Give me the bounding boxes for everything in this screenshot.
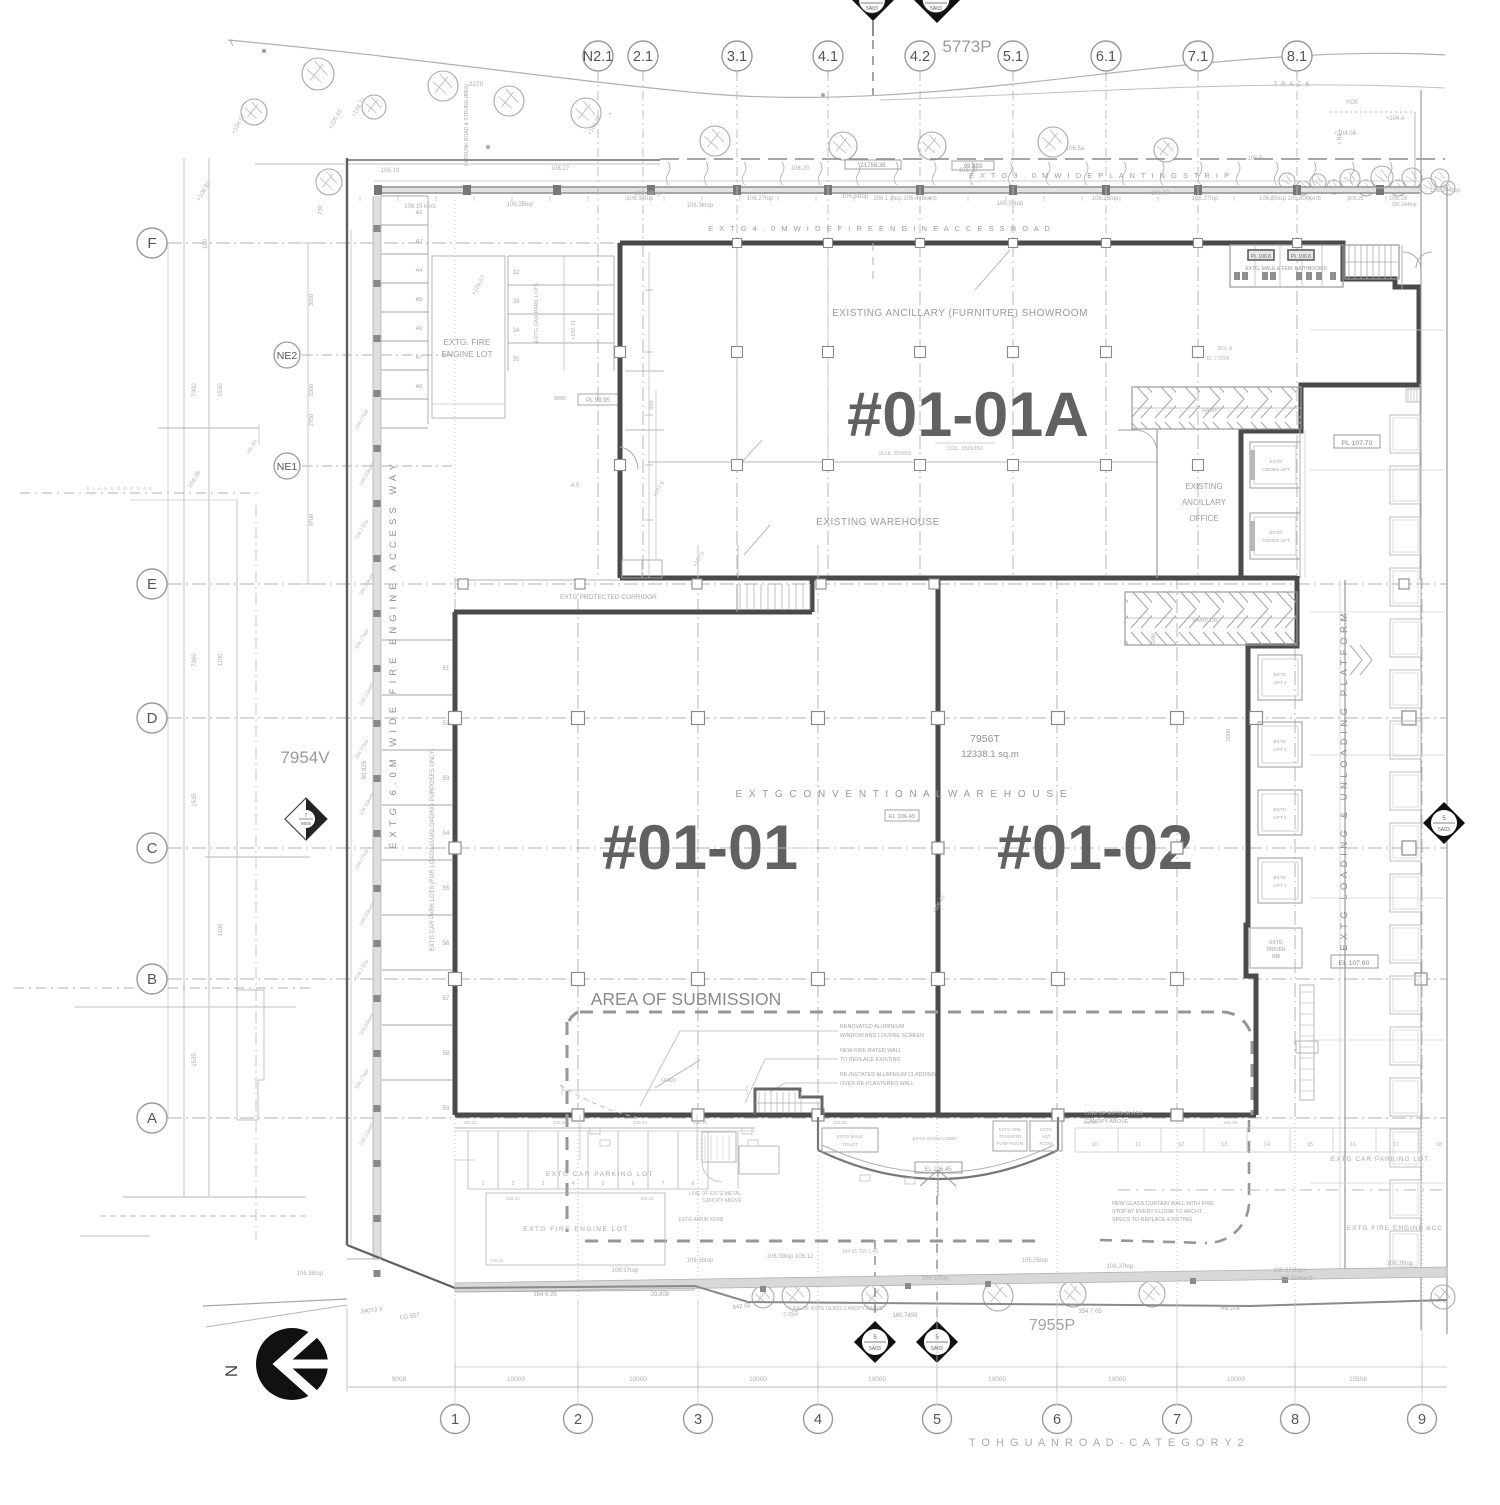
svg-text:LIFT 1: LIFT 1	[1273, 883, 1287, 888]
svg-text:34: 34	[513, 328, 520, 334]
svg-text:EXTG: EXTG	[1274, 739, 1287, 744]
svg-text:5A03: 5A03	[1438, 827, 1450, 833]
svg-text:RAMP DN: RAMP DN	[1192, 618, 1217, 624]
svg-text:EXISTING: EXISTING	[1185, 482, 1222, 491]
svg-text:106.19: 106.19	[381, 168, 400, 174]
svg-text:EXTG: EXTG	[1269, 940, 1283, 946]
svg-text:54: 54	[443, 831, 450, 837]
svg-text:10: 10	[1092, 1142, 1098, 1148]
svg-text:A8: A8	[416, 384, 423, 390]
svg-text:10000: 10000	[1108, 1376, 1126, 1383]
svg-text:EXTG: EXTG	[1274, 875, 1287, 880]
svg-text:A7: A7	[416, 355, 423, 361]
svg-text:2: 2	[574, 1412, 582, 1428]
svg-text:RE-INSTATED ALUMINIUM CLADDING: RE-INSTATED ALUMINIUM CLADDING	[840, 1072, 936, 1078]
svg-text:1500: 1500	[1151, 634, 1157, 646]
svg-text:1535: 1535	[192, 1053, 198, 1067]
svg-text:1100: 1100	[218, 923, 224, 937]
svg-text:GOODS LIFT: GOODS LIFT	[1262, 538, 1290, 543]
svg-text:6: 6	[632, 1181, 635, 1187]
svg-text:E X T G 3 . 0 M W I D E: E X T G 3 . 0 M W I D E P L A N T I N G …	[969, 171, 1231, 180]
svg-text:5A03: 5A03	[866, 6, 878, 12]
svg-text:106.39top 106.12: 106.39top 106.12	[767, 1254, 814, 1260]
svg-text:51: 51	[443, 666, 450, 672]
svg-text:ROL A: ROL A	[1218, 346, 1233, 352]
svg-text:LINE OF EXTG METAL: LINE OF EXTG METAL	[689, 1191, 741, 1197]
svg-text:106.27: 106.27	[551, 166, 570, 172]
svg-text:106.32: 106.32	[463, 1120, 477, 1125]
svg-text:EXTG. FIRE: EXTG. FIRE	[443, 337, 491, 347]
svg-text:7954V: 7954V	[280, 748, 330, 767]
svg-text:A: A	[147, 1110, 157, 1127]
svg-text:5300: 5300	[309, 384, 315, 396]
svg-text:106.77: 106.77	[1151, 191, 1170, 197]
svg-text:A2: A2	[416, 210, 423, 216]
svg-text:5A03: 5A03	[869, 1346, 881, 1352]
svg-text:106.38top: 106.38top	[1387, 1261, 1414, 1267]
svg-text:TRANSFER: TRANSFER	[999, 1134, 1022, 1139]
svg-text:EXTG: EXTG	[1270, 459, 1283, 464]
svg-text:5: 5	[933, 1412, 941, 1428]
svg-text:57: 57	[443, 996, 450, 1002]
svg-text:EXTG: EXTG	[1270, 530, 1283, 535]
svg-text:ANCILLARY: ANCILLARY	[1182, 498, 1227, 507]
svg-text:PL 99.95: PL 99.95	[586, 398, 610, 404]
svg-text:TO REPLACE EXISTING: TO REPLACE EXISTING	[840, 1057, 901, 1063]
svg-text:2.1: 2.1	[633, 49, 653, 65]
svg-text:35: 35	[513, 357, 520, 363]
svg-text:106.30: 106.30	[693, 1120, 707, 1125]
svg-text:4.5: 4.5	[571, 483, 580, 489]
svg-text:106.34top: 106.34top	[842, 194, 869, 200]
svg-text:1535: 1535	[192, 793, 198, 807]
svg-text:106.38top: 106.38top	[687, 1258, 714, 1264]
svg-text:EXTG CAR PARKING LOT: EXTG CAR PARKING LOT	[1331, 1156, 1429, 1163]
svg-text:N: N	[222, 1365, 241, 1377]
svg-text:106.38top: 106.38top	[635, 191, 662, 197]
svg-text:106.31: 106.31	[490, 1258, 504, 1263]
svg-text:AREA OF SUBMISSION: AREA OF SUBMISSION	[591, 989, 782, 1009]
svg-text:A3: A3	[416, 239, 423, 245]
svg-text:+: +	[608, 112, 612, 118]
svg-text:32: 32	[513, 270, 520, 276]
svg-text:106.35top: 106.35top	[507, 202, 534, 208]
svg-text:106.27top: 106.27top	[1192, 196, 1219, 202]
svg-text:7956T: 7956T	[970, 733, 1000, 745]
svg-text:CANOPY ABOVE: CANOPY ABOVE	[702, 1198, 742, 1204]
svg-text:59: 59	[443, 1106, 450, 1112]
svg-text:9008: 9008	[392, 1376, 407, 1383]
svg-text:PL 107.70: PL 107.70	[1342, 440, 1373, 447]
svg-text:DRIVER: DRIVER	[1267, 947, 1286, 953]
svg-text:106.25top 105.806kerb: 106.25top 105.806kerb	[1259, 196, 1321, 202]
svg-text:D: D	[147, 710, 158, 727]
svg-text:T R A C K: T R A C K	[1273, 81, 1310, 88]
svg-text:7955P: 7955P	[1029, 1317, 1075, 1334]
svg-text:EL 7 OSN: EL 7 OSN	[1207, 356, 1230, 362]
svg-text:106.38: 106.38	[1083, 1120, 1097, 1125]
svg-text:EXTG SHOW LOBBY: EXTG SHOW LOBBY	[913, 1136, 958, 1141]
svg-text:354 6.25: 354 6.25	[533, 1292, 557, 1298]
svg-text:8: 8	[692, 1181, 695, 1187]
svg-text:PL 106.8: PL 106.8	[1251, 254, 1271, 260]
svg-text:9506: 9506	[301, 821, 312, 826]
svg-text:LINE OF EXTG GLASS: LINE OF EXTG GLASS	[1085, 1111, 1143, 1117]
svg-text:106.45: 106.45	[1223, 1120, 1237, 1125]
svg-text:EXTG MALE: EXTG MALE	[837, 1134, 863, 1139]
svg-text:14400: 14400	[660, 1078, 675, 1084]
svg-text:7: 7	[1173, 1412, 1181, 1428]
svg-text:OVER RE-PLASTERED WALL: OVER RE-PLASTERED WALL	[840, 1081, 914, 1087]
svg-text:106.5a: 106.5a	[1066, 146, 1085, 152]
svg-text:EXTG FIRE: EXTG FIRE	[999, 1127, 1021, 1132]
svg-text:EXTG 6.0M WIDE FIRE ENGINE ACC: EXTG 6.0M WIDE FIRE ENGINE ACCESS WAY	[388, 459, 399, 849]
svg-text:58: 58	[443, 1051, 450, 1057]
svg-text:8: 8	[1291, 1412, 1299, 1428]
svg-text:16: 16	[1350, 1142, 1356, 1148]
svg-text:EL 107.60: EL 107.60	[1339, 960, 1370, 967]
svg-text:53: 53	[443, 776, 450, 782]
svg-text:3550: 3550	[309, 294, 315, 306]
svg-text:LIFT 3: LIFT 3	[1273, 747, 1287, 752]
svg-text:106.25: 106.25	[640, 1196, 654, 1201]
svg-text:10508: 10508	[1349, 1376, 1367, 1383]
svg-text:3: 3	[694, 1412, 702, 1428]
svg-text:+104.4: +104.4	[1386, 116, 1405, 122]
svg-text:NEW GLASS CURTAIN WALL WITH FI: NEW GLASS CURTAIN WALL WITH FIRE	[1112, 1201, 1214, 1207]
svg-text:EXTG. MALE & FEM. BATHROOMS: EXTG. MALE & FEM. BATHROOMS	[1245, 266, 1327, 272]
svg-text:17: 17	[1393, 1142, 1399, 1148]
svg-text:2750: 2750	[309, 414, 315, 426]
svg-text:EXTG FIRE ENGINE LOT: EXTG FIRE ENGINE LOT	[523, 1226, 628, 1233]
svg-text:105.804kerb: 105.804kerb	[1279, 1276, 1313, 1282]
svg-text:106.24: 106.24	[506, 1196, 520, 1201]
svg-text:354 7 05: 354 7 05	[1078, 1309, 1102, 1315]
svg-text:5.1: 5.1	[1003, 49, 1023, 65]
svg-text:EL 106.45: EL 106.45	[924, 1167, 952, 1173]
svg-text:7.1: 7.1	[1188, 49, 1208, 65]
svg-text:7: 7	[662, 1181, 665, 1187]
svg-text:106.37top: 106.37top	[1107, 1264, 1134, 1270]
svg-text:105.05top: 105.05top	[1022, 1258, 1049, 1264]
svg-text:1530: 1530	[218, 383, 224, 397]
svg-text:SPECS TO REPLACE EXISTING: SPECS TO REPLACE EXISTING	[1112, 1217, 1192, 1223]
svg-text:4.2: 4.2	[910, 49, 930, 65]
svg-text:1: 1	[451, 1412, 459, 1428]
svg-text:1: 1	[482, 1181, 485, 1187]
svg-text:11: 11	[1135, 1142, 1141, 1148]
svg-text:EXTG: EXTG	[1040, 1127, 1051, 1132]
svg-text:4.1: 4.1	[818, 49, 838, 65]
svg-text:106.37top: 106.37top	[612, 1268, 639, 1274]
svg-text:NE2: NE2	[277, 350, 298, 362]
svg-text:160.7499: 160.7499	[892, 1313, 918, 1319]
svg-text:10000: 10000	[507, 1376, 525, 1383]
svg-text:RAMP: RAMP	[1202, 408, 1218, 414]
svg-text:106.36top: 106.36top	[687, 203, 714, 209]
svg-text:7300: 7300	[192, 653, 198, 667]
svg-text:730: 730	[318, 205, 324, 214]
svg-text:9700: 9700	[309, 514, 315, 526]
svg-text:EXTG CAR PARKING LOT: EXTG CAR PARKING LOT	[546, 1171, 654, 1178]
svg-text:E X T G 4 . 0 M W I D E: E X T G 4 . 0 M W I D E F I R E E N G I …	[708, 224, 1052, 233]
svg-text:ROOM: ROOM	[1039, 1141, 1053, 1146]
svg-text:13: 13	[1221, 1142, 1227, 1148]
svg-text:2270: 2270	[469, 81, 484, 88]
svg-text:E X T G C O N V E N T I O N: E X T G C O N V E N T I O N A L W A R E …	[735, 789, 1068, 800]
svg-text:ENGINE LOT: ENGINE LOT	[441, 349, 492, 359]
svg-text:900: 900	[649, 400, 655, 409]
svg-text:EXTG LOADING & UNLOADING PLATF: EXTG LOADING & UNLOADING PLATFORM	[1339, 609, 1350, 951]
svg-text:56: 56	[443, 941, 450, 947]
svg-text:9: 9	[1418, 1412, 1426, 1428]
svg-text:4: 4	[814, 1412, 822, 1428]
svg-text:1100: 1100	[218, 653, 224, 667]
svg-text:106.1 2top 105.446kerb: 106.1 2top 105.446kerb	[873, 196, 937, 202]
svg-text:NEW FIRE RATED WALL: NEW FIRE RATED WALL	[840, 1048, 902, 1054]
svg-text:106.32: 106.32	[959, 168, 978, 174]
svg-text:106.20: 106.20	[791, 166, 810, 172]
svg-text:7300: 7300	[192, 383, 198, 397]
svg-text:106.38: 106.38	[833, 1120, 847, 1125]
svg-text:105.5: 105.5	[1247, 156, 1263, 162]
svg-text:55: 55	[443, 886, 450, 892]
svg-text:WINDOW AND LOUVRE SCREEN: WINDOW AND LOUVRE SCREEN	[840, 1033, 924, 1039]
svg-text:106.244top: 106.244top	[1391, 202, 1416, 208]
svg-text:10000: 10000	[749, 1376, 767, 1383]
svg-text:5: 5	[602, 1181, 605, 1187]
svg-text:106.25: 106.25	[1348, 196, 1364, 202]
svg-text:EXISTING WAREHOUSE: EXISTING WAREHOUSE	[816, 517, 940, 528]
svg-text:+102.71: +102.71	[571, 320, 577, 340]
svg-text:RM: RM	[1272, 954, 1280, 960]
svg-text:#01-02: #01-02	[997, 813, 1193, 883]
svg-text:IN TRUNK ROAD & STRUNG (MES): IN TRUNK ROAD & STRUNG (MES)	[464, 84, 470, 166]
svg-text:106.25top: 106.25top	[1092, 196, 1119, 202]
svg-text:A5: A5	[416, 297, 423, 303]
svg-text:F: F	[147, 235, 156, 252]
svg-text:PUMP ROOM: PUMP ROOM	[997, 1141, 1024, 1146]
svg-text:TOILET: TOILET	[842, 1142, 858, 1147]
svg-text:EXTG ARKIN KERB: EXTG ARKIN KERB	[678, 1217, 724, 1223]
svg-text:33: 33	[513, 299, 520, 305]
svg-text:8.1: 8.1	[1287, 49, 1307, 65]
svg-text:6: 6	[1053, 1412, 1061, 1428]
svg-text:15: 15	[1307, 1142, 1313, 1148]
svg-text:LINE OF EXTG GLASS CANOPY ABOV: LINE OF EXTG GLASS CANOPY ABOVE	[790, 1306, 884, 1312]
svg-text:+ N2 +: + N2 +	[1337, 129, 1343, 146]
svg-text:106.37top: 106.37top	[922, 1276, 949, 1282]
svg-text:P L A N N E D R O A D: P L A N N E D R O A D	[87, 486, 154, 491]
svg-text:#01-01A: #01-01A	[847, 380, 1089, 450]
svg-text:106.86top: 106.86top	[297, 1271, 324, 1277]
svg-text:106.371top+: 106.371top+	[1273, 1268, 1307, 1274]
svg-text:LIFT 4: LIFT 4	[1273, 680, 1287, 685]
svg-text:OFFICE: OFFICE	[1189, 514, 1218, 523]
svg-text:106.244top: 106.244top	[1430, 188, 1461, 194]
svg-text:5000: 5000	[1226, 729, 1232, 741]
svg-text:10000: 10000	[988, 1376, 1006, 1383]
svg-text:10000: 10000	[868, 1376, 886, 1383]
svg-text:5773P: 5773P	[942, 37, 991, 56]
svg-text:EXTG: EXTG	[1274, 807, 1287, 812]
svg-text:YCK: YCK	[1346, 100, 1358, 106]
svg-text:5A03: 5A03	[930, 6, 942, 12]
svg-text:PL 106.8: PL 106.8	[1291, 254, 1311, 260]
svg-text:ULL&. 055/001: ULL&. 055/001	[878, 451, 912, 457]
svg-text:EXTG PROTECTED CORRIDOR: EXTG PROTECTED CORRIDOR	[560, 594, 657, 601]
svg-text:164 65 165 1.46: 164 65 165 1.46	[842, 1249, 878, 1255]
svg-text:4: 4	[572, 1181, 575, 1187]
svg-text:106.34: 106.34	[633, 1120, 647, 1125]
svg-text:NE1: NE1	[277, 461, 298, 473]
svg-text:LIFT 2: LIFT 2	[1273, 815, 1287, 820]
svg-text:EXTG CAR PARK LOTS (FOR LOADIN: EXTG CAR PARK LOTS (FOR LOADING/UNLOADIN…	[430, 749, 436, 951]
svg-text:EXISTING ANCILLARY (FURNITURE): EXISTING ANCILLARY (FURNITURE) SHOWROOM	[832, 308, 1088, 319]
svg-text:99.825: 99.825	[362, 760, 368, 779]
svg-text:A6: A6	[416, 326, 423, 332]
svg-text:10000: 10000	[629, 1376, 647, 1383]
svg-text:B: B	[147, 971, 157, 988]
svg-text:EL 106.45: EL 106.45	[889, 814, 915, 820]
svg-text:RENOVATED ALUMINIUM: RENOVATED ALUMINIUM	[840, 1024, 905, 1030]
svg-text:7: 7	[305, 813, 308, 819]
svg-text:6.1: 6.1	[1096, 49, 1116, 65]
svg-text:100: 100	[203, 238, 209, 249]
svg-text:3.1: 3.1	[727, 49, 747, 65]
svg-text:E: E	[147, 576, 157, 593]
svg-text:2: 2	[512, 1181, 515, 1187]
svg-text:R6.204: R6.204	[1220, 1306, 1240, 1312]
svg-text:12338.1 sq.m: 12338.1 sq.m	[961, 749, 1019, 760]
svg-text:106.36top: 106.36top	[997, 201, 1024, 207]
svg-text:10000: 10000	[1227, 1376, 1245, 1383]
svg-text:29.808: 29.808	[651, 1292, 670, 1298]
svg-text:14: 14	[1264, 1142, 1270, 1148]
svg-text:A4: A4	[416, 268, 423, 274]
svg-text:EXTG: EXTG	[1274, 672, 1287, 677]
svg-text:T O H G U A N R O A D -: T O H G U A N R O A D - C A T E G O R Y …	[969, 1437, 1245, 1449]
svg-text:GOODS LIFT: GOODS LIFT	[1262, 467, 1290, 472]
svg-text:106.27top: 106.27top	[747, 196, 774, 202]
svg-text:18: 18	[1436, 1142, 1442, 1148]
svg-text:21758.38: 21758.38	[860, 163, 886, 169]
svg-text:EXTG CAR PARK LOTS: EXTG CAR PARK LOTS	[534, 283, 540, 343]
svg-text:C: C	[147, 840, 158, 857]
svg-text:HQT: HQT	[1042, 1134, 1051, 1139]
svg-text:N2.1: N2.1	[583, 49, 614, 65]
svg-text:8800: 8800	[554, 396, 566, 402]
svg-text:3: 3	[542, 1181, 545, 1187]
svg-text:STOP AT EVERY FLOOR TO ARCHT: STOP AT EVERY FLOOR TO ARCHT	[1112, 1209, 1203, 1215]
svg-text:106.12: 106.12	[553, 1120, 567, 1125]
svg-text:12: 12	[1178, 1142, 1184, 1148]
